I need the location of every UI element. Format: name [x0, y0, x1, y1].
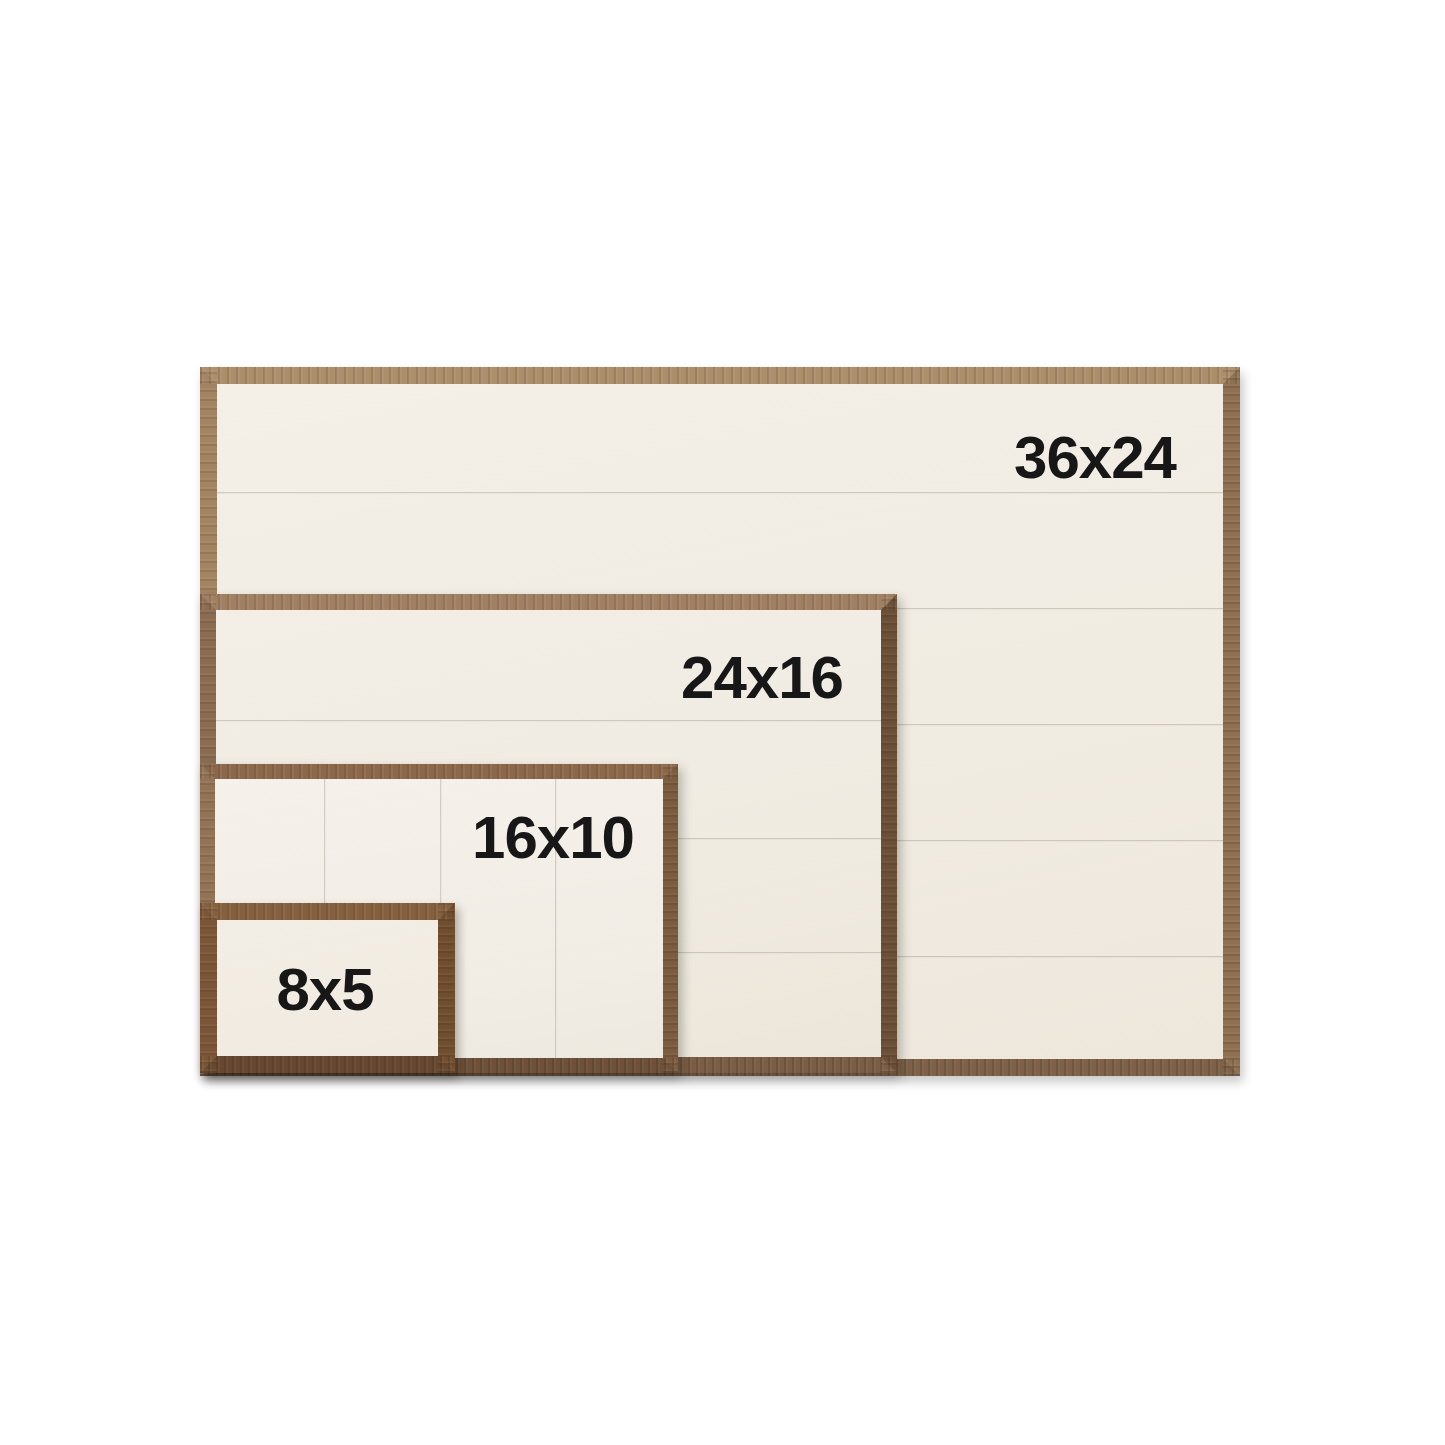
- size-label-8x5: 8x5: [276, 960, 373, 1020]
- size-label-24x16: 24x16: [681, 648, 843, 708]
- wood-grain-right: [663, 764, 678, 1073]
- size-label-16x10: 16x10: [472, 808, 634, 868]
- wood-grain-top: [200, 764, 678, 779]
- wood-grain-right: [881, 594, 897, 1073]
- wood-grain-top: [200, 594, 897, 610]
- frame-8x5: 8x5: [200, 903, 455, 1073]
- size-comparison-diagram: 36x24 24x16 16x10 8x5: [0, 0, 1445, 1445]
- wood-grain-top: [200, 367, 1240, 384]
- shiplap-seam: [217, 492, 1223, 494]
- wood-grain-right: [1223, 367, 1240, 1076]
- wood-grain-top: [200, 903, 455, 920]
- wood-grain-bottom: [200, 1056, 455, 1073]
- wood-grain-left: [200, 903, 217, 1073]
- size-label-36x24: 36x24: [1014, 428, 1176, 488]
- shiplap-seam: [216, 720, 881, 722]
- wood-grain-right: [438, 903, 455, 1073]
